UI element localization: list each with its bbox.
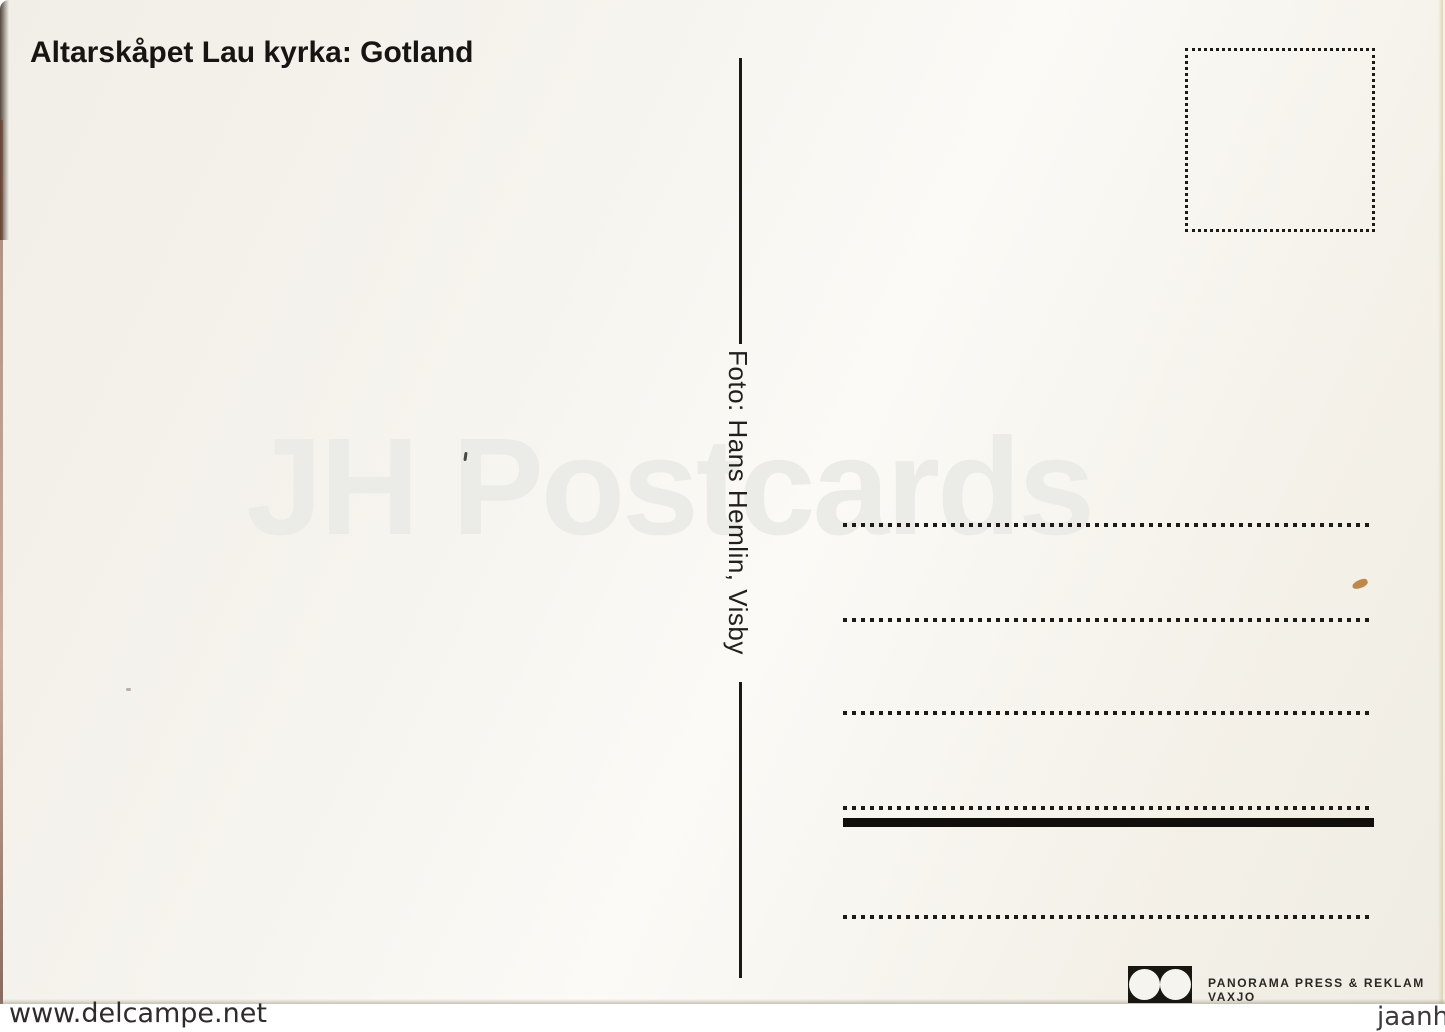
publisher-name: PANORAMA PRESS & REKLAM VAXJO [1208,976,1445,1004]
address-dotted-line [843,711,1374,715]
logo-circle-left [1129,969,1160,1000]
postcard-scan: JH Postcards Altarskåpet Lau kyrka: Gotl… [0,0,1445,1032]
photo-credit: Foto: Hans Hemlin, Visby [722,350,753,680]
center-divider-line-bottom [739,682,742,978]
scan-edge-left-line [0,120,3,1004]
stamp-box [1185,48,1375,232]
delcampe-watermark: www.delcampe.net [9,998,267,1029]
paper-speck [126,688,131,691]
center-divider-line-top [739,58,742,344]
address-dotted-line [843,915,1374,919]
postcard-back: JH Postcards Altarskåpet Lau kyrka: Gotl… [0,0,1445,1004]
address-dotted-line [843,618,1374,622]
publisher-logo-icon [1128,966,1192,1003]
logo-circle-right [1160,969,1191,1000]
paper-stain-speck [1351,578,1369,591]
address-dotted-line [843,523,1374,527]
ink-speck [463,452,467,461]
center-watermark: JH Postcards [246,408,1092,567]
jaanhus-watermark: jaanhus [1377,1002,1445,1032]
address-thick-line [843,818,1374,827]
scan-edge-right-shadow [1438,0,1443,1004]
postcard-title: Altarskåpet Lau kyrka: Gotland [30,36,473,70]
address-dotted-line [843,806,1374,810]
